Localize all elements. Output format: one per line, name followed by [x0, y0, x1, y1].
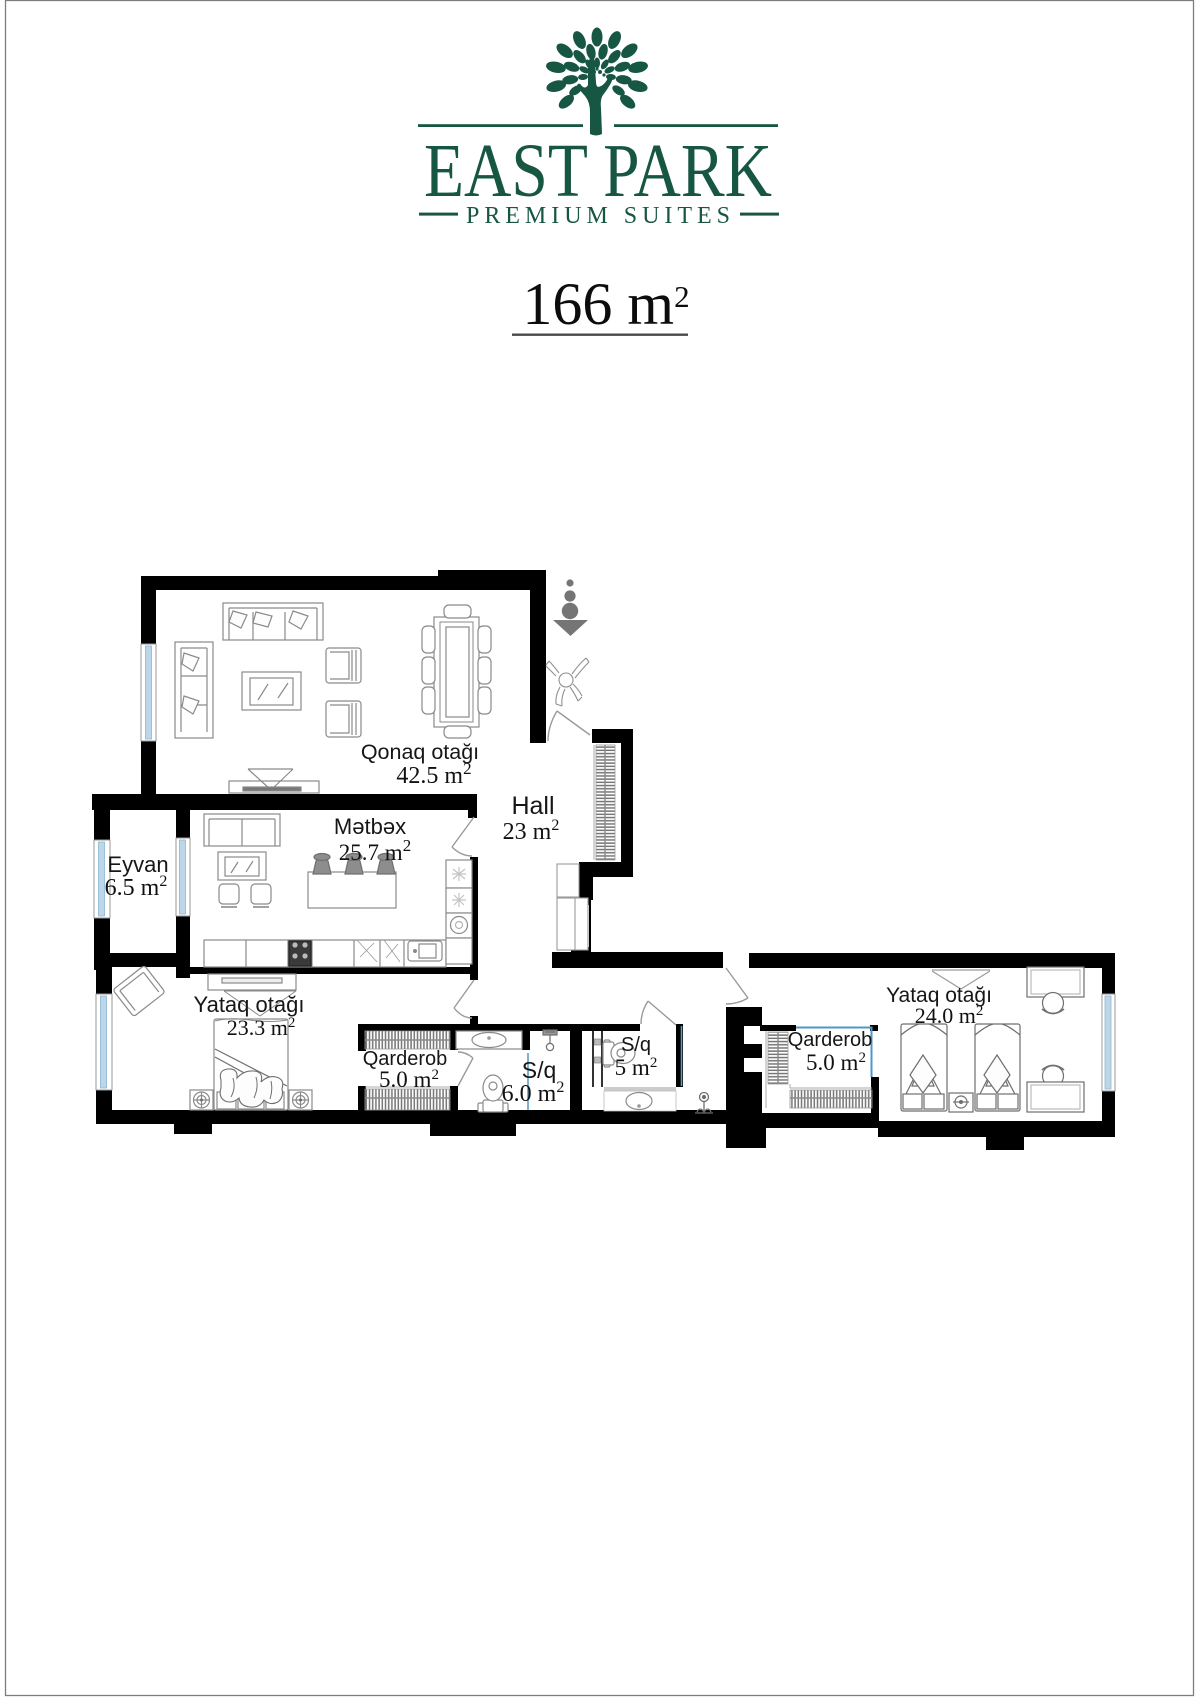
- svg-text:6.0 m2: 6.0 m2: [502, 1079, 565, 1107]
- svg-text:Yataq otağı: Yataq otağı: [194, 992, 305, 1017]
- svg-text:Qarderob: Qarderob: [788, 1029, 873, 1051]
- svg-text:25.7 m2: 25.7 m2: [339, 836, 411, 865]
- svg-text:S/q: S/q: [621, 1034, 651, 1056]
- svg-text:6.5 m2: 6.5 m2: [105, 873, 168, 901]
- svg-text:5.0 m2: 5.0 m2: [806, 1050, 866, 1075]
- svg-text:Hall: Hall: [511, 792, 554, 820]
- svg-text:5.0 m2: 5.0 m2: [379, 1067, 439, 1092]
- svg-text:24.0 m2: 24.0 m2: [915, 1003, 984, 1028]
- svg-text:EAST PARK: EAST PARK: [424, 129, 772, 213]
- svg-text:23 m2: 23 m2: [503, 817, 560, 845]
- svg-text:42.5 m2: 42.5 m2: [396, 759, 471, 789]
- svg-text:Mətbəx: Mətbəx: [334, 814, 406, 839]
- svg-text:Qonaq otağı: Qonaq otağı: [361, 740, 479, 764]
- svg-text:5 m2: 5 m2: [615, 1055, 658, 1080]
- svg-text:S/q: S/q: [522, 1057, 557, 1083]
- svg-text:PREMIUM SUITES: PREMIUM SUITES: [466, 203, 730, 229]
- svg-text:23.3 m2: 23.3 m2: [227, 1015, 296, 1040]
- svg-text:166 m2: 166 m2: [522, 271, 689, 337]
